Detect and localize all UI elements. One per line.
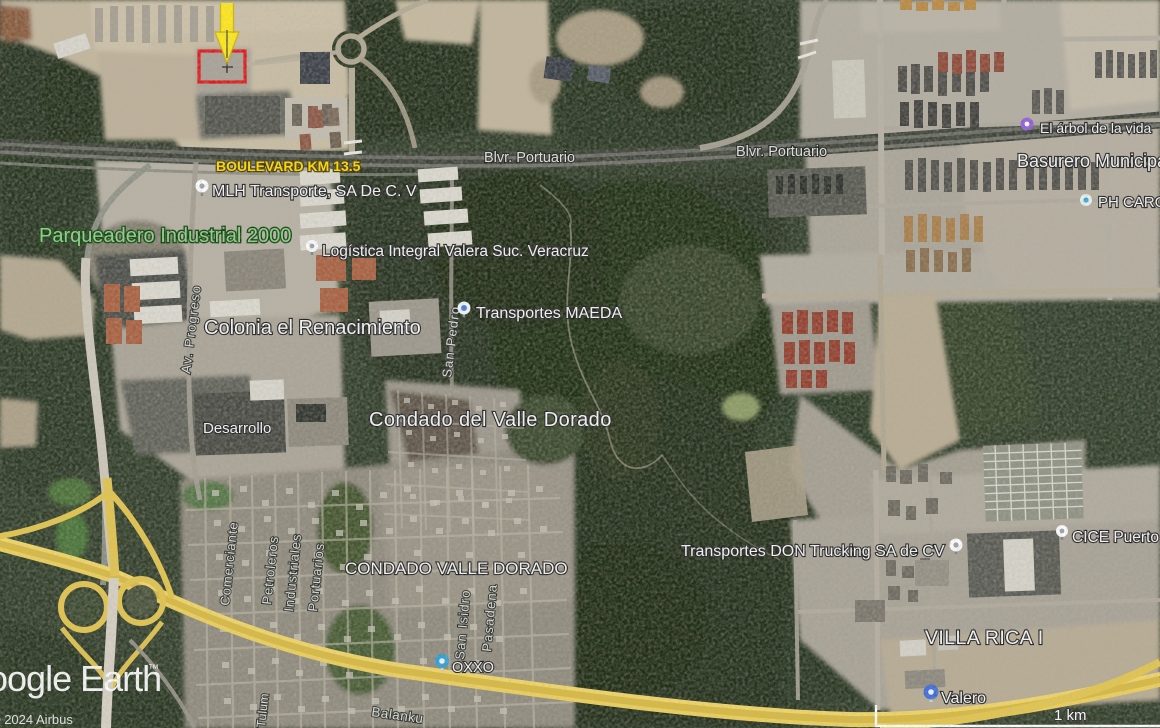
svg-text:1 km: 1 km: [1054, 707, 1087, 724]
svg-text:PH CARG: PH CARG: [1098, 194, 1160, 211]
svg-text:Valero: Valero: [941, 690, 986, 707]
svg-text:OXXO: OXXO: [452, 660, 494, 676]
svg-text:CONDADO VALLE DORADO: CONDADO VALLE DORADO: [345, 559, 568, 578]
svg-text:™: ™: [148, 663, 159, 675]
svg-text:© 2024 Airbus: © 2024 Airbus: [0, 712, 73, 727]
svg-text:Blvr. Portuario: Blvr. Portuario: [736, 144, 827, 160]
svg-text:VILLA RICA I: VILLA RICA I: [925, 627, 1044, 649]
svg-text:Colonia el Renacimiento: Colonia el Renacimiento: [204, 317, 421, 339]
svg-text:CICE Puerto: CICE Puerto: [1072, 529, 1159, 546]
svg-text:Google Earth: Google Earth: [0, 658, 161, 699]
svg-text:Basurero Municipal: Basurero Municipal: [1017, 151, 1160, 171]
svg-text:Transportes DON Trucking SA de: Transportes DON Trucking SA de CV: [681, 543, 945, 560]
svg-text:Transportes MAEDA: Transportes MAEDA: [476, 305, 622, 322]
svg-text:Parqueadero Industrial 2000: Parqueadero Industrial 2000: [39, 225, 291, 247]
svg-text:Logística Integral Valera Suc.: Logística Integral Valera Suc. Veracruz: [322, 243, 589, 260]
svg-text:MLH Transporte, SA De C. V: MLH Transporte, SA De C. V: [212, 183, 417, 200]
svg-text:El árbol de la vida: El árbol de la vida: [1040, 120, 1152, 136]
svg-text:BOULEVARD KM 13.5: BOULEVARD KM 13.5: [216, 158, 361, 174]
svg-text:Desarrollo: Desarrollo: [203, 420, 271, 437]
svg-text:Blvr. Portuario: Blvr. Portuario: [484, 150, 575, 166]
svg-text:Condado del Valle Dorado: Condado del Valle Dorado: [369, 409, 612, 431]
